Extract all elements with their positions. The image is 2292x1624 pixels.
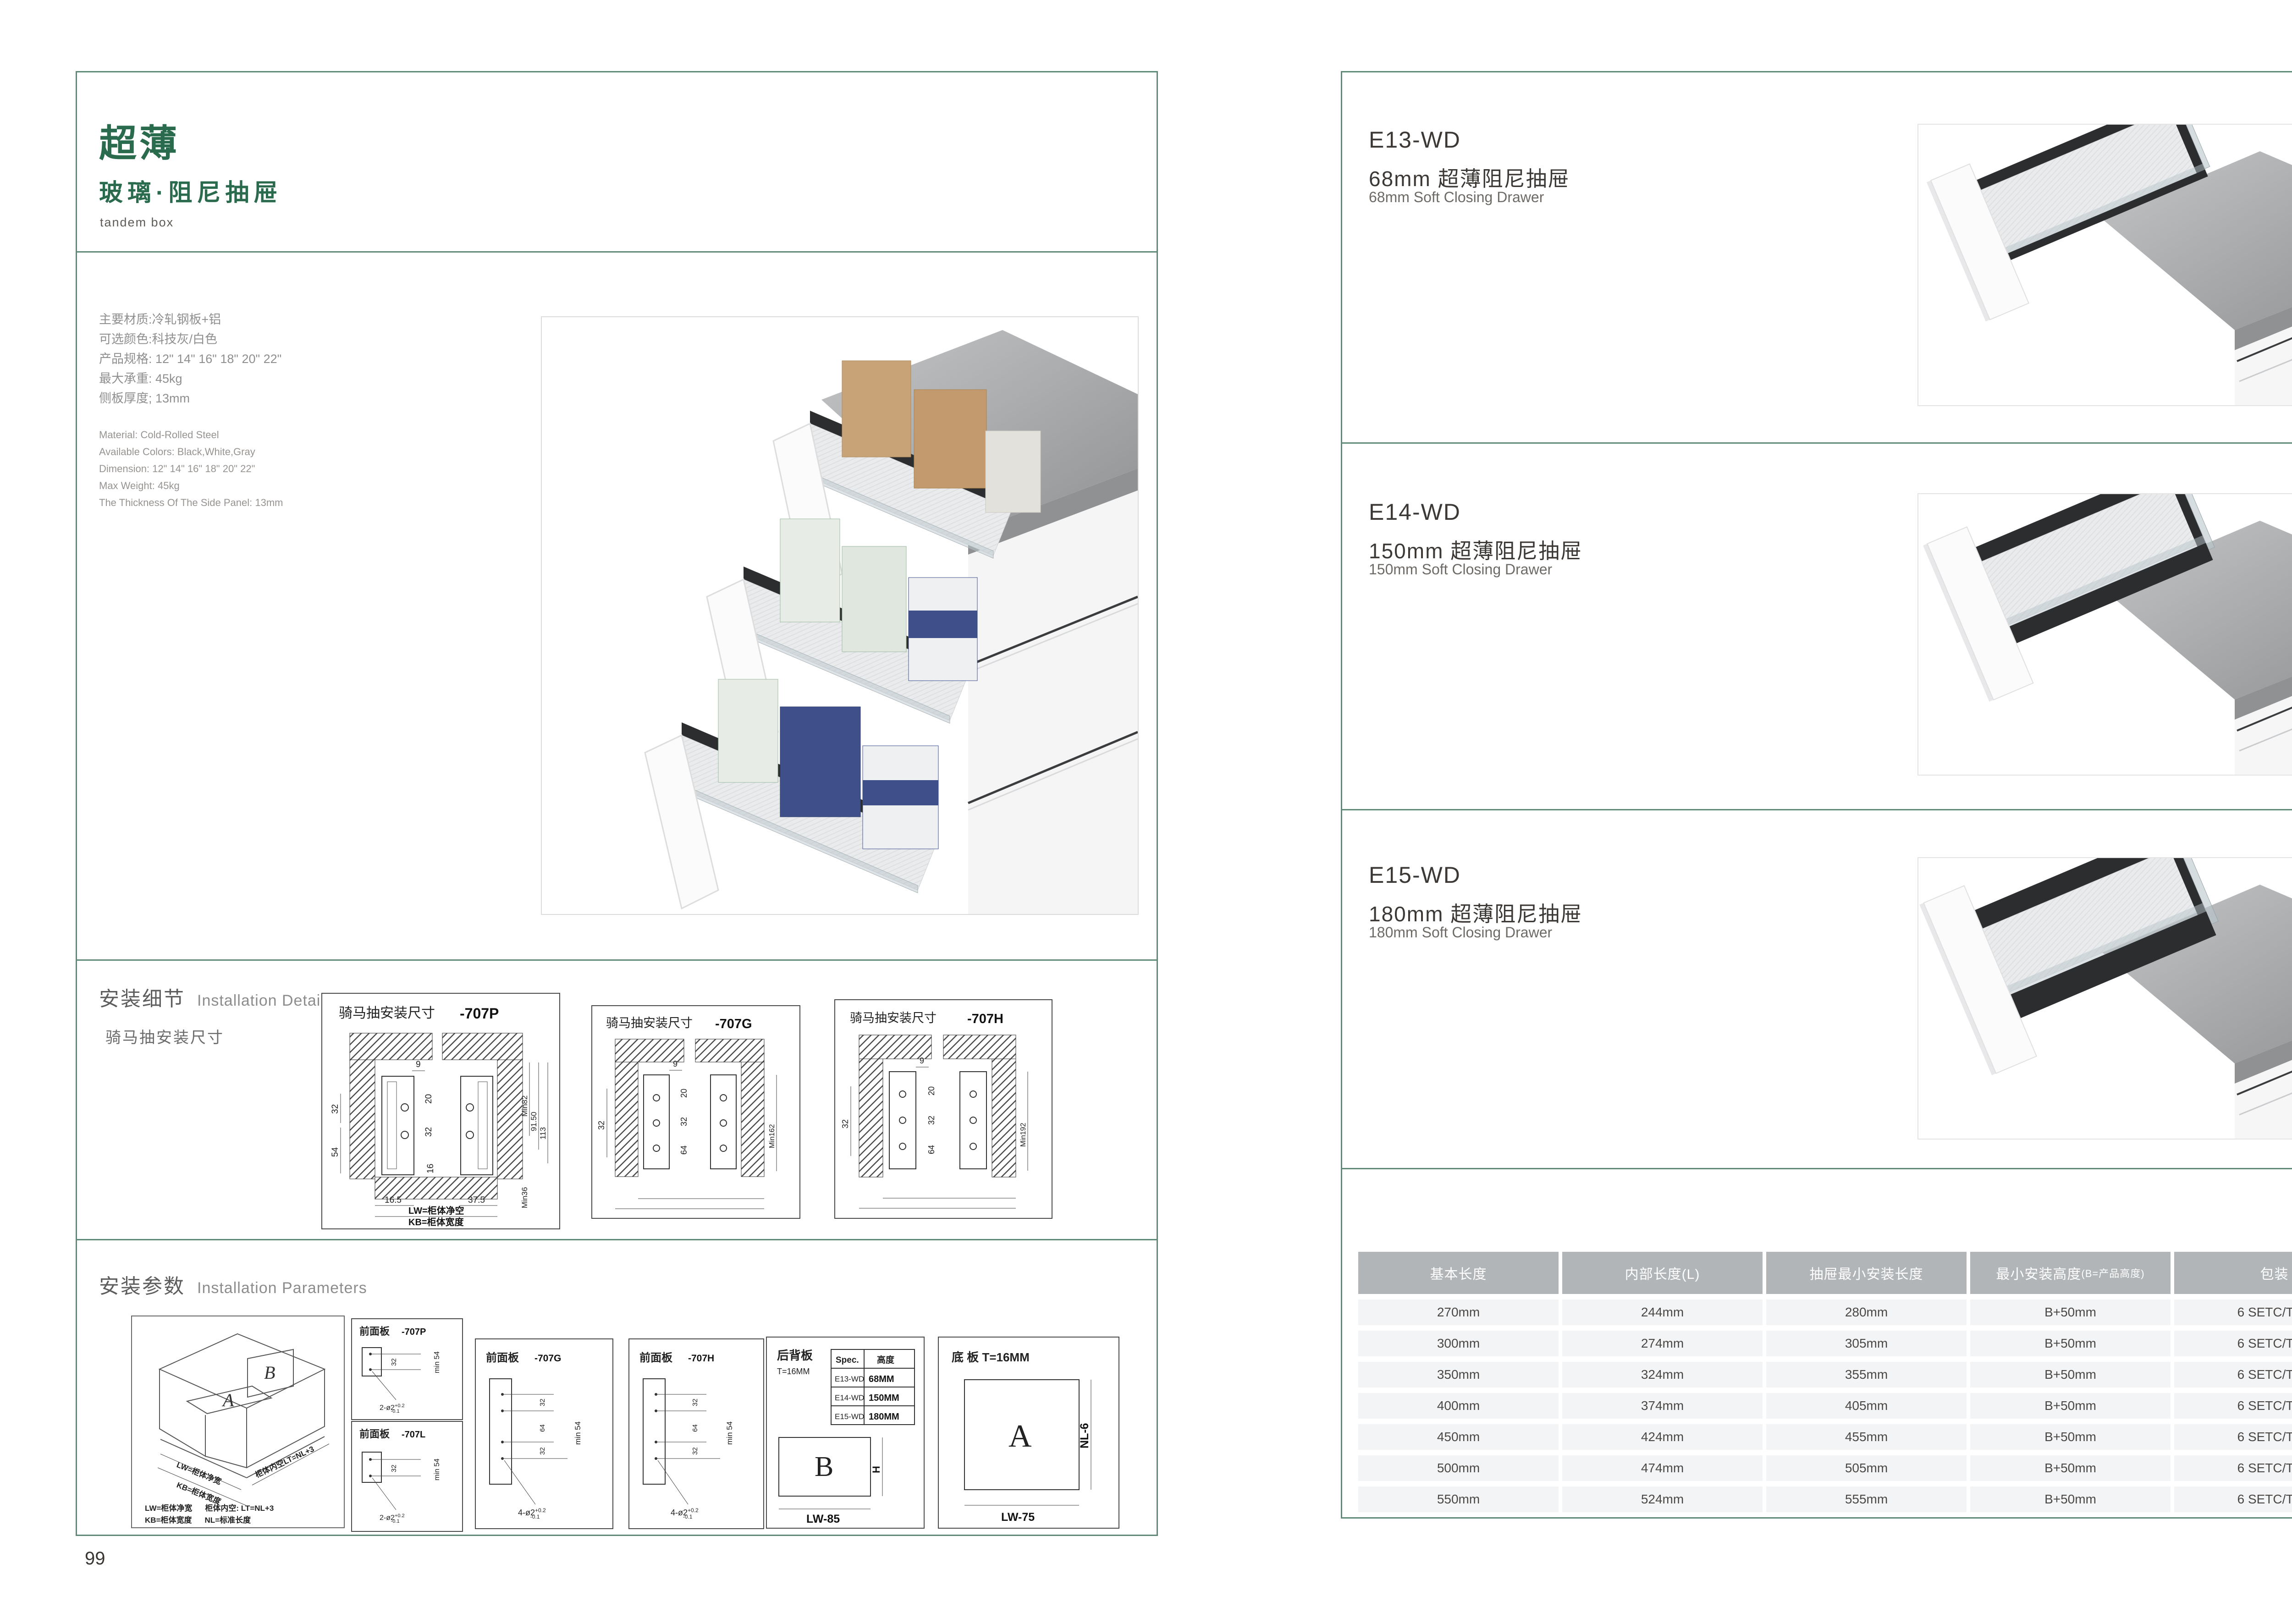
spec-line: Max Weight: 45kg bbox=[99, 477, 283, 494]
svg-text:H: H bbox=[871, 1466, 882, 1473]
svg-text:-707G: -707G bbox=[534, 1353, 561, 1364]
svg-text:32: 32 bbox=[691, 1447, 699, 1455]
divider bbox=[77, 1239, 1157, 1240]
page-left: 超薄 玻璃·阻尼抽屉 tandem box 主要材质:冷轧钢板+铝 可选颜色:科… bbox=[76, 71, 1158, 1536]
specs-en: Material: Cold-Rolled Steel Available Co… bbox=[99, 426, 283, 511]
svg-text:2-ø2+0.2-0.1: 2-ø2+0.2-0.1 bbox=[380, 1403, 405, 1414]
product-name-cn: 180mm 超薄阻尼抽屉 bbox=[1369, 897, 1582, 928]
svg-text:前面板: 前面板 bbox=[486, 1351, 519, 1364]
svg-text:前面板: 前面板 bbox=[359, 1428, 390, 1440]
table-header-cell: 基本长度 bbox=[1358, 1252, 1559, 1294]
spec-line: The Thickness Of The Side Panel: 13mm bbox=[99, 494, 283, 511]
drawer-illustration-e15 bbox=[1918, 858, 2292, 1139]
svg-text:32: 32 bbox=[691, 1398, 699, 1406]
params-heading-en: Installation Parameters bbox=[197, 1279, 367, 1297]
svg-text:91.50: 91.50 bbox=[529, 1112, 538, 1131]
svg-text:16: 16 bbox=[426, 1164, 435, 1173]
table-row: 300mm 274mm 305mm B+50mm 6 SETC/TNB bbox=[1358, 1331, 2292, 1356]
svg-text:-707P: -707P bbox=[402, 1327, 426, 1337]
back-panel-diagram: 后背板 T=16MM Spec. 高度 E13-WD 68MM E14-WD 1… bbox=[766, 1337, 925, 1529]
svg-text:180MM: 180MM bbox=[869, 1412, 899, 1422]
svg-text:-707P: -707P bbox=[460, 1005, 499, 1022]
tech-drawing-707h: 骑马抽安装尺寸 -707H 9 20 32 64 3 bbox=[834, 999, 1052, 1219]
spec-line: Available Colors: Black,White,Gray bbox=[99, 443, 283, 460]
svg-text:LW-85: LW-85 bbox=[806, 1513, 840, 1525]
front-panel-707p-diagram: 前面板 -707P 32 min 54 2-ø2+0.2-0.1 bbox=[351, 1318, 463, 1420]
table-header-row: 基本长度 内部长度(L) 抽屉最小安装长度 最小安装高度(B=产品高度) 包装 bbox=[1358, 1252, 2292, 1294]
svg-text:32: 32 bbox=[927, 1116, 936, 1125]
svg-text:32: 32 bbox=[679, 1117, 689, 1126]
divider bbox=[1342, 442, 2292, 444]
tech-drawing-707p-svg: 骑马抽安装尺寸 -707P 9 20 32 32 bbox=[322, 994, 559, 1228]
svg-text:68MM: 68MM bbox=[869, 1374, 894, 1384]
svg-text:后背板: 后背板 bbox=[777, 1349, 813, 1362]
front-panel-707l-svg: 前面板 -707L 32 min 54 2-ø2+0.2-0.1 bbox=[352, 1422, 462, 1531]
svg-text:32: 32 bbox=[390, 1358, 398, 1366]
svg-text:37.5: 37.5 bbox=[468, 1195, 485, 1205]
dimensions-table: 基本长度 内部长度(L) 抽屉最小安装长度 最小安装高度(B=产品高度) 包装 … bbox=[1358, 1252, 2292, 1512]
drawer-illustration-e14 bbox=[1918, 494, 2292, 775]
svg-text:Min192: Min192 bbox=[1019, 1123, 1027, 1147]
product-photo-e15 bbox=[1917, 857, 2292, 1140]
svg-text:32: 32 bbox=[390, 1464, 398, 1472]
table-header-cell: 内部长度(L) bbox=[1562, 1252, 1763, 1294]
front-panel-707p-svg: 前面板 -707P 32 min 54 2-ø2+0.2-0.1 bbox=[352, 1319, 462, 1419]
bottom-panel-diagram: 底 板 T=16MM A NL-6 LW-75 bbox=[938, 1337, 1119, 1529]
svg-text:16.5: 16.5 bbox=[385, 1195, 402, 1205]
svg-text:前面板: 前面板 bbox=[359, 1326, 390, 1337]
svg-text:骑马抽安装尺寸: 骑马抽安装尺寸 bbox=[339, 1006, 435, 1021]
svg-text:Min36: Min36 bbox=[520, 1187, 529, 1208]
svg-text:底 板 T=16MM: 底 板 T=16MM bbox=[952, 1350, 1030, 1364]
page-number-left: 99 bbox=[85, 1548, 105, 1569]
svg-text:Min162: Min162 bbox=[768, 1124, 776, 1148]
iso-cabinet-diagram: A B LW=柜体净宽 KB=柜体宽度 柜体内空LT=NL+3 LW=柜体净宽柜… bbox=[131, 1316, 345, 1528]
table-row: 400mm 374mm 405mm B+50mm 6 SETC/TNB bbox=[1358, 1393, 2292, 1419]
svg-text:min 54: min 54 bbox=[433, 1351, 441, 1373]
product-name-cn: 150mm 超薄阻尼抽屉 bbox=[1369, 534, 1582, 565]
svg-text:LW-75: LW-75 bbox=[1001, 1511, 1035, 1524]
table-header-cell: 包装 bbox=[2174, 1252, 2292, 1294]
svg-text:4-ø2+0.2-0.1: 4-ø2+0.2-0.1 bbox=[671, 1507, 699, 1520]
details-subheading: 骑马抽安装尺寸 bbox=[105, 1025, 224, 1047]
divider bbox=[1342, 1168, 2292, 1169]
svg-text:32: 32 bbox=[331, 1104, 340, 1114]
product-name-en: 150mm Soft Closing Drawer bbox=[1369, 561, 1552, 578]
page-title: 超薄 bbox=[99, 113, 180, 167]
svg-text:64: 64 bbox=[539, 1424, 546, 1432]
product-photo-three-drawers bbox=[541, 316, 1139, 915]
back-panel-diagram-svg: 后背板 T=16MM Spec. 高度 E13-WD 68MM E14-WD 1… bbox=[767, 1338, 924, 1528]
svg-text:Spec.: Spec. bbox=[836, 1355, 859, 1365]
front-panel-707l-diagram: 前面板 -707L 32 min 54 2-ø2+0.2-0.1 bbox=[351, 1421, 463, 1532]
front-panel-707h-diagram: 前面板 -707H 32 64 32 min 54 4-ø2+0.2-0.1 bbox=[628, 1338, 764, 1529]
spec-line: Dimension: 12" 14" 16" 18" 20" 22" bbox=[99, 460, 283, 477]
svg-text:骑马抽安装尺寸: 骑马抽安装尺寸 bbox=[606, 1016, 693, 1030]
svg-text:20: 20 bbox=[424, 1094, 434, 1104]
svg-text:32: 32 bbox=[539, 1447, 546, 1455]
page-subtitle: 玻璃·阻尼抽屉 bbox=[99, 173, 282, 208]
svg-text:54: 54 bbox=[331, 1147, 340, 1157]
spec-line: 可选颜色:科技灰/白色 bbox=[99, 330, 281, 349]
svg-text:KB=柜体宽度: KB=柜体宽度 bbox=[408, 1217, 464, 1228]
svg-text:NL-6: NL-6 bbox=[1078, 1423, 1091, 1448]
svg-text:KB=柜体宽度NL=标准长度: KB=柜体宽度NL=标准长度 bbox=[145, 1515, 251, 1525]
svg-text:64: 64 bbox=[691, 1424, 699, 1432]
drawer-cabinet-illustration bbox=[542, 317, 1138, 914]
svg-text:9: 9 bbox=[673, 1059, 678, 1068]
svg-text:前面板: 前面板 bbox=[639, 1351, 673, 1364]
svg-text:64: 64 bbox=[927, 1145, 936, 1154]
svg-text:LW=柜体净宽柜体内空: LT=NL+3: LW=柜体净宽柜体内空: LT=NL+3 bbox=[145, 1503, 274, 1513]
params-heading-cn: 安装参数 bbox=[99, 1275, 185, 1298]
table-row: 550mm 524mm 555mm B+50mm 6 SETC/TNB bbox=[1358, 1486, 2292, 1512]
product-name-en: 180mm Soft Closing Drawer bbox=[1369, 924, 1552, 941]
svg-text:2-ø2+0.2-0.1: 2-ø2+0.2-0.1 bbox=[380, 1513, 405, 1524]
specs-cn: 主要材质:冷轧钢板+铝 可选颜色:科技灰/白色 产品规格: 12" 14" 16… bbox=[99, 310, 281, 408]
svg-text:4-ø2+0.2-0.1: 4-ø2+0.2-0.1 bbox=[518, 1507, 546, 1520]
spec-line: 最大承重: 45kg bbox=[99, 369, 281, 389]
details-heading: 安装细节Installation Details bbox=[99, 982, 333, 1012]
svg-text:Min82: Min82 bbox=[520, 1096, 529, 1117]
product-model: E15-WD bbox=[1369, 862, 1461, 888]
svg-text:32: 32 bbox=[841, 1119, 850, 1129]
tech-drawing-707g: 骑马抽安装尺寸 -707G 9 20 32 64 3 bbox=[591, 1005, 800, 1219]
svg-text:-707L: -707L bbox=[402, 1430, 425, 1440]
details-heading-cn: 安装细节 bbox=[99, 988, 185, 1010]
product-photo-e14 bbox=[1917, 493, 2292, 776]
svg-text:113: 113 bbox=[539, 1127, 547, 1140]
svg-text:A: A bbox=[221, 1390, 234, 1410]
svg-text:min 54: min 54 bbox=[433, 1459, 441, 1481]
svg-text:骑马抽安装尺寸: 骑马抽安装尺寸 bbox=[850, 1011, 937, 1025]
svg-text:E13-WD: E13-WD bbox=[835, 1375, 864, 1383]
product-name-cn: 68mm 超薄阻尼抽屉 bbox=[1369, 162, 1570, 193]
page-right: E13-WD 68mm 超薄阻尼抽屉 68mm Soft Closing Dra… bbox=[1341, 71, 2292, 1519]
params-heading: 安装参数Installation Parameters bbox=[99, 1270, 367, 1299]
svg-text:32: 32 bbox=[424, 1127, 434, 1137]
svg-text:E14-WD: E14-WD bbox=[835, 1393, 864, 1402]
svg-text:20: 20 bbox=[927, 1086, 936, 1096]
tech-drawing-707g-svg: 骑马抽安装尺寸 -707G 9 20 32 64 3 bbox=[592, 1006, 799, 1218]
product-model: E14-WD bbox=[1369, 499, 1461, 525]
svg-text:-707H: -707H bbox=[967, 1012, 1003, 1026]
svg-text:LW=柜体净空: LW=柜体净空 bbox=[408, 1205, 464, 1216]
table-row: 270mm 244mm 280mm B+50mm 6 SETC/TNB bbox=[1358, 1299, 2292, 1325]
svg-text:B: B bbox=[815, 1451, 833, 1482]
table-header-cell: 抽屉最小安装长度 bbox=[1766, 1252, 1967, 1294]
front-panel-707g-svg: 前面板 -707G 32 64 32 min 54 4-ø2+0.2-0.1 bbox=[476, 1339, 612, 1528]
iso-cabinet-diagram-svg: A B LW=柜体净宽 KB=柜体宽度 柜体内空LT=NL+3 LW=柜体净宽柜… bbox=[132, 1316, 344, 1527]
divider bbox=[1342, 809, 2292, 810]
table-row: 450mm 424mm 455mm B+50mm 6 SETC/TNB bbox=[1358, 1424, 2292, 1450]
svg-text:9: 9 bbox=[416, 1060, 421, 1069]
svg-text:150MM: 150MM bbox=[869, 1393, 899, 1403]
front-panel-707h-svg: 前面板 -707H 32 64 32 min 54 4-ø2+0.2-0.1 bbox=[629, 1339, 763, 1528]
front-panel-707g-diagram: 前面板 -707G 32 64 32 min 54 4-ø2+0.2-0.1 bbox=[475, 1338, 613, 1529]
table-row: 500mm 474mm 505mm B+50mm 6 SETC/TNB bbox=[1358, 1455, 2292, 1481]
svg-text:64: 64 bbox=[679, 1145, 689, 1155]
svg-text:9: 9 bbox=[920, 1056, 924, 1065]
tech-drawing-707p: 骑马抽安装尺寸 -707P 9 20 32 32 bbox=[321, 993, 560, 1229]
tech-drawing-707h-svg: 骑马抽安装尺寸 -707H 9 20 32 64 3 bbox=[835, 1000, 1052, 1218]
svg-text:E15-WD: E15-WD bbox=[835, 1412, 864, 1421]
svg-text:B: B bbox=[264, 1362, 275, 1383]
svg-text:高度: 高度 bbox=[877, 1354, 895, 1365]
catalog-spread: 超薄 玻璃·阻尼抽屉 tandem box 主要材质:冷轧钢板+铝 可选颜色:科… bbox=[0, 0, 2292, 1624]
svg-text:T=16MM: T=16MM bbox=[777, 1367, 810, 1376]
spec-line: 产品规格: 12" 14" 16" 18" 20" 22" bbox=[99, 349, 281, 369]
spec-line: 主要材质:冷轧钢板+铝 bbox=[99, 310, 281, 330]
divider bbox=[77, 251, 1157, 253]
drawer-illustration-e13 bbox=[1918, 125, 2292, 405]
product-photo-e13 bbox=[1917, 124, 2292, 406]
svg-text:32: 32 bbox=[539, 1398, 546, 1406]
product-model: E13-WD bbox=[1369, 127, 1461, 153]
bottom-panel-diagram-svg: 底 板 T=16MM A NL-6 LW-75 bbox=[939, 1338, 1118, 1528]
svg-text:-707H: -707H bbox=[688, 1353, 714, 1364]
svg-text:-707G: -707G bbox=[715, 1017, 752, 1031]
svg-text:柜体内空LT=NL+3: 柜体内空LT=NL+3 bbox=[253, 1444, 315, 1480]
details-heading-en: Installation Details bbox=[197, 992, 333, 1009]
svg-text:32: 32 bbox=[597, 1121, 606, 1130]
spec-line: 侧板厚度; 13mm bbox=[99, 389, 281, 408]
spec-line: Material: Cold-Rolled Steel bbox=[99, 426, 283, 443]
table-header-cell: 最小安装高度(B=产品高度) bbox=[1970, 1252, 2171, 1294]
svg-text:20: 20 bbox=[679, 1089, 689, 1098]
table-row: 350mm 324mm 355mm B+50mm 6 SETC/TNB bbox=[1358, 1362, 2292, 1387]
divider bbox=[77, 959, 1157, 961]
svg-text:A: A bbox=[1008, 1419, 1032, 1454]
page-tagline: tandem box bbox=[100, 215, 174, 230]
svg-text:min 54: min 54 bbox=[725, 1421, 734, 1445]
svg-text:min 54: min 54 bbox=[573, 1421, 582, 1445]
product-name-en: 68mm Soft Closing Drawer bbox=[1369, 189, 1544, 206]
